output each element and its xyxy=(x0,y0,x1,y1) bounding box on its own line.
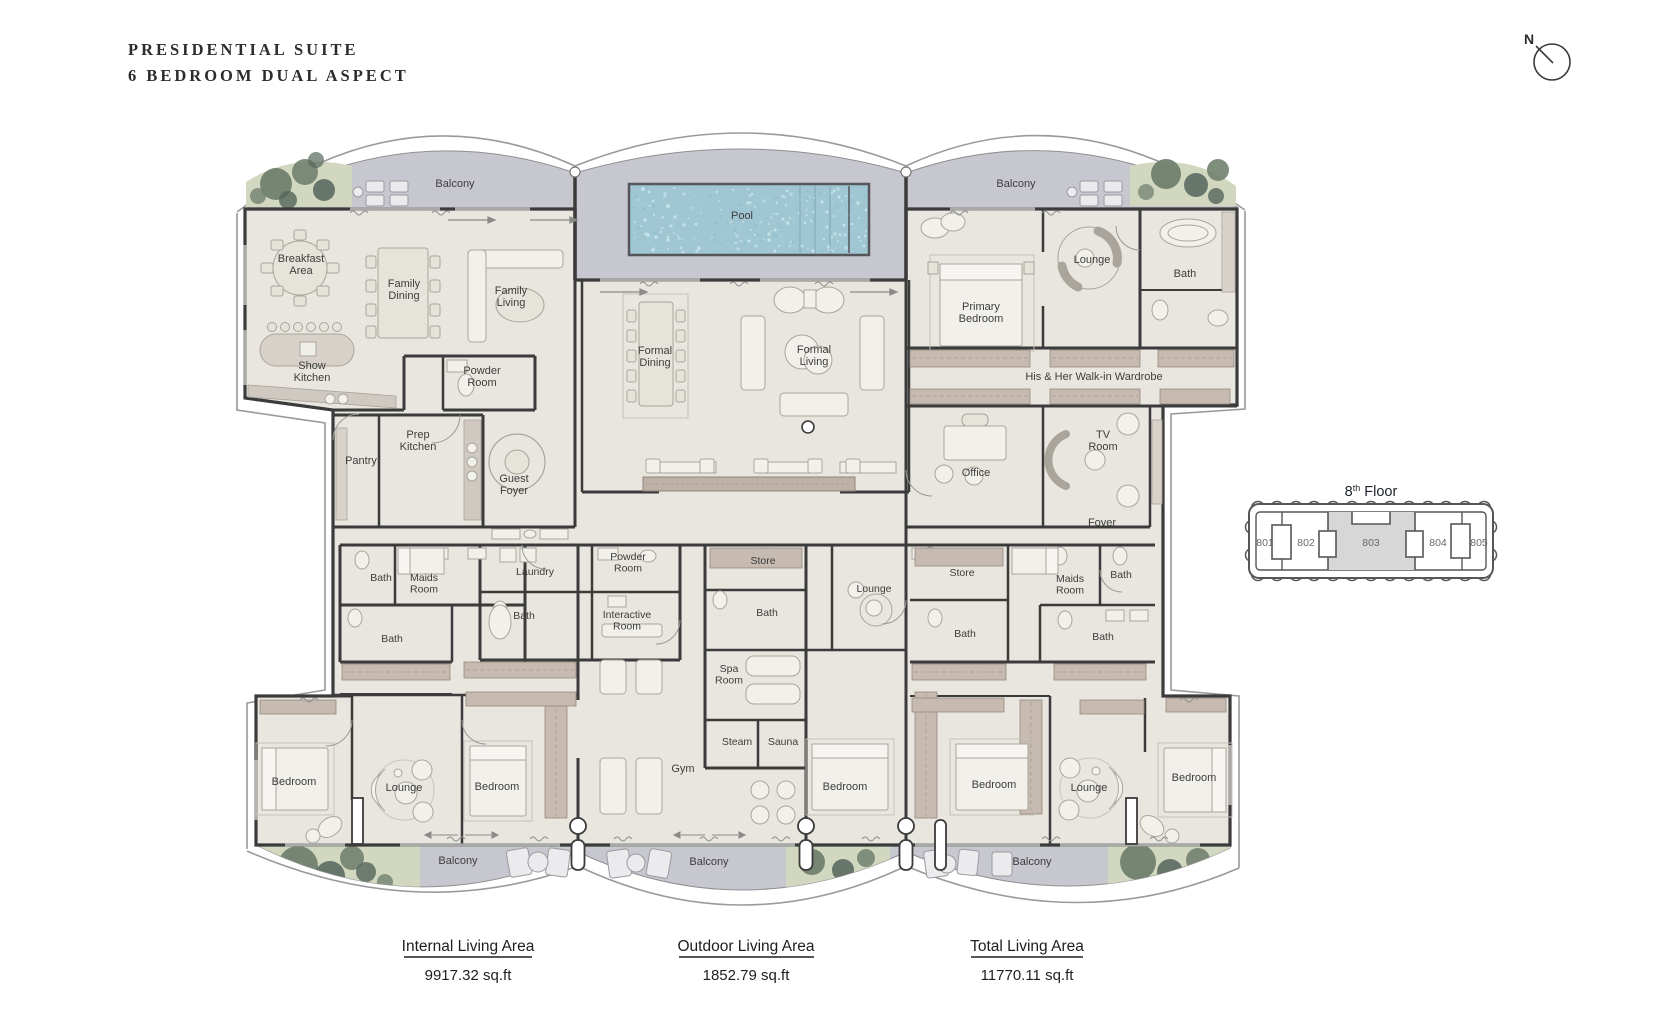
svg-text:Balcony: Balcony xyxy=(689,856,729,868)
svg-text:Steam: Steam xyxy=(722,736,753,748)
svg-text:MaidsRoom: MaidsRoom xyxy=(410,572,438,596)
svg-text:Bath: Bath xyxy=(756,607,778,619)
svg-text:PRESIDENTIAL SUITE: PRESIDENTIAL SUITE xyxy=(128,40,359,59)
svg-text:1852.79 sq.ft: 1852.79 sq.ft xyxy=(703,967,791,984)
svg-text:Lounge: Lounge xyxy=(1071,782,1108,794)
svg-text:Total Living Area: Total Living Area xyxy=(970,938,1084,955)
svg-text:Gym: Gym xyxy=(671,763,694,775)
svg-text:FormalDining: FormalDining xyxy=(638,345,672,369)
svg-text:804: 804 xyxy=(1429,537,1447,549)
svg-text:Bath: Bath xyxy=(954,628,976,640)
svg-text:Bedroom: Bedroom xyxy=(823,781,868,793)
svg-text:802: 802 xyxy=(1297,537,1315,549)
svg-text:11770.11 sq.ft: 11770.11 sq.ft xyxy=(981,967,1075,984)
svg-text:MaidsRoom: MaidsRoom xyxy=(1056,573,1084,597)
svg-text:801: 801 xyxy=(1256,537,1274,549)
svg-text:6 BEDROOM DUAL ASPECT: 6 BEDROOM DUAL ASPECT xyxy=(128,66,409,85)
svg-text:805: 805 xyxy=(1470,537,1488,549)
svg-text:Bedroom: Bedroom xyxy=(1172,772,1217,784)
svg-text:FormalLiving: FormalLiving xyxy=(797,344,831,368)
svg-text:Bath: Bath xyxy=(370,572,392,584)
svg-text:Bedroom: Bedroom xyxy=(272,776,317,788)
svg-text:Bedroom: Bedroom xyxy=(972,779,1017,791)
svg-text:PrimaryBedroom: PrimaryBedroom xyxy=(959,301,1004,325)
svg-text:Outdoor Living Area: Outdoor Living Area xyxy=(677,938,814,955)
svg-text:N: N xyxy=(1524,31,1534,47)
svg-text:Store: Store xyxy=(750,555,775,567)
svg-text:Lounge: Lounge xyxy=(386,782,423,794)
svg-text:Bath: Bath xyxy=(381,633,403,645)
svg-text:Internal Living Area: Internal Living Area xyxy=(402,938,535,955)
svg-text:GuestFoyer: GuestFoyer xyxy=(499,473,528,497)
svg-text:Balcony: Balcony xyxy=(996,178,1036,190)
svg-text:ShowKitchen: ShowKitchen xyxy=(294,360,331,384)
svg-text:Balcony: Balcony xyxy=(435,178,475,190)
svg-text:Pool: Pool xyxy=(731,210,753,222)
svg-text:Lounge: Lounge xyxy=(856,583,891,595)
svg-text:FamilyDining: FamilyDining xyxy=(388,278,421,302)
svg-text:Balcony: Balcony xyxy=(438,855,478,867)
svg-text:9917.32 sq.ft: 9917.32 sq.ft xyxy=(425,967,513,984)
svg-text:Office: Office xyxy=(962,467,991,479)
svg-text:Bath: Bath xyxy=(513,610,535,622)
svg-text:Balcony: Balcony xyxy=(1012,856,1052,868)
svg-text:Bedroom: Bedroom xyxy=(475,781,520,793)
svg-text:His & Her Walk-in Wardrobe: His & Her Walk-in Wardrobe xyxy=(1025,371,1162,383)
svg-text:Store: Store xyxy=(949,567,974,579)
svg-text:Laundry: Laundry xyxy=(516,566,555,578)
svg-text:PowderRoom: PowderRoom xyxy=(463,365,501,389)
svg-text:Bath: Bath xyxy=(1174,268,1197,280)
svg-text:Lounge: Lounge xyxy=(1074,254,1111,266)
svg-text:PowderRoom: PowderRoom xyxy=(610,551,646,575)
svg-text:Bath: Bath xyxy=(1092,631,1114,643)
svg-text:FamilyLiving: FamilyLiving xyxy=(495,285,528,309)
svg-text:Bath: Bath xyxy=(1110,569,1132,581)
svg-text:8th Floor: 8th Floor xyxy=(1345,483,1398,500)
svg-text:Sauna: Sauna xyxy=(768,736,799,748)
svg-text:Pantry: Pantry xyxy=(345,455,377,467)
svg-text:Foyer: Foyer xyxy=(1088,517,1116,529)
svg-text:803: 803 xyxy=(1362,537,1380,549)
